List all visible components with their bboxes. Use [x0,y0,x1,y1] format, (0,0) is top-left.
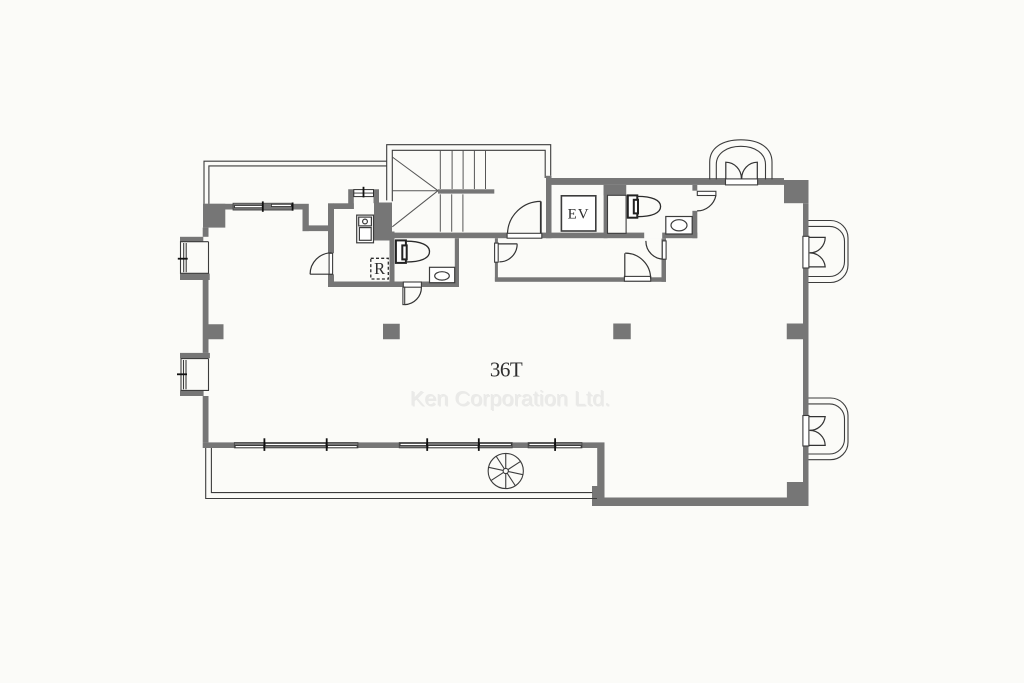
svg-text:36T: 36T [490,358,523,382]
svg-text:R: R [374,259,385,278]
svg-text:Ken Corporation Ltd.: Ken Corporation Ltd. [410,387,610,411]
svg-text:EV: EV [568,206,590,222]
